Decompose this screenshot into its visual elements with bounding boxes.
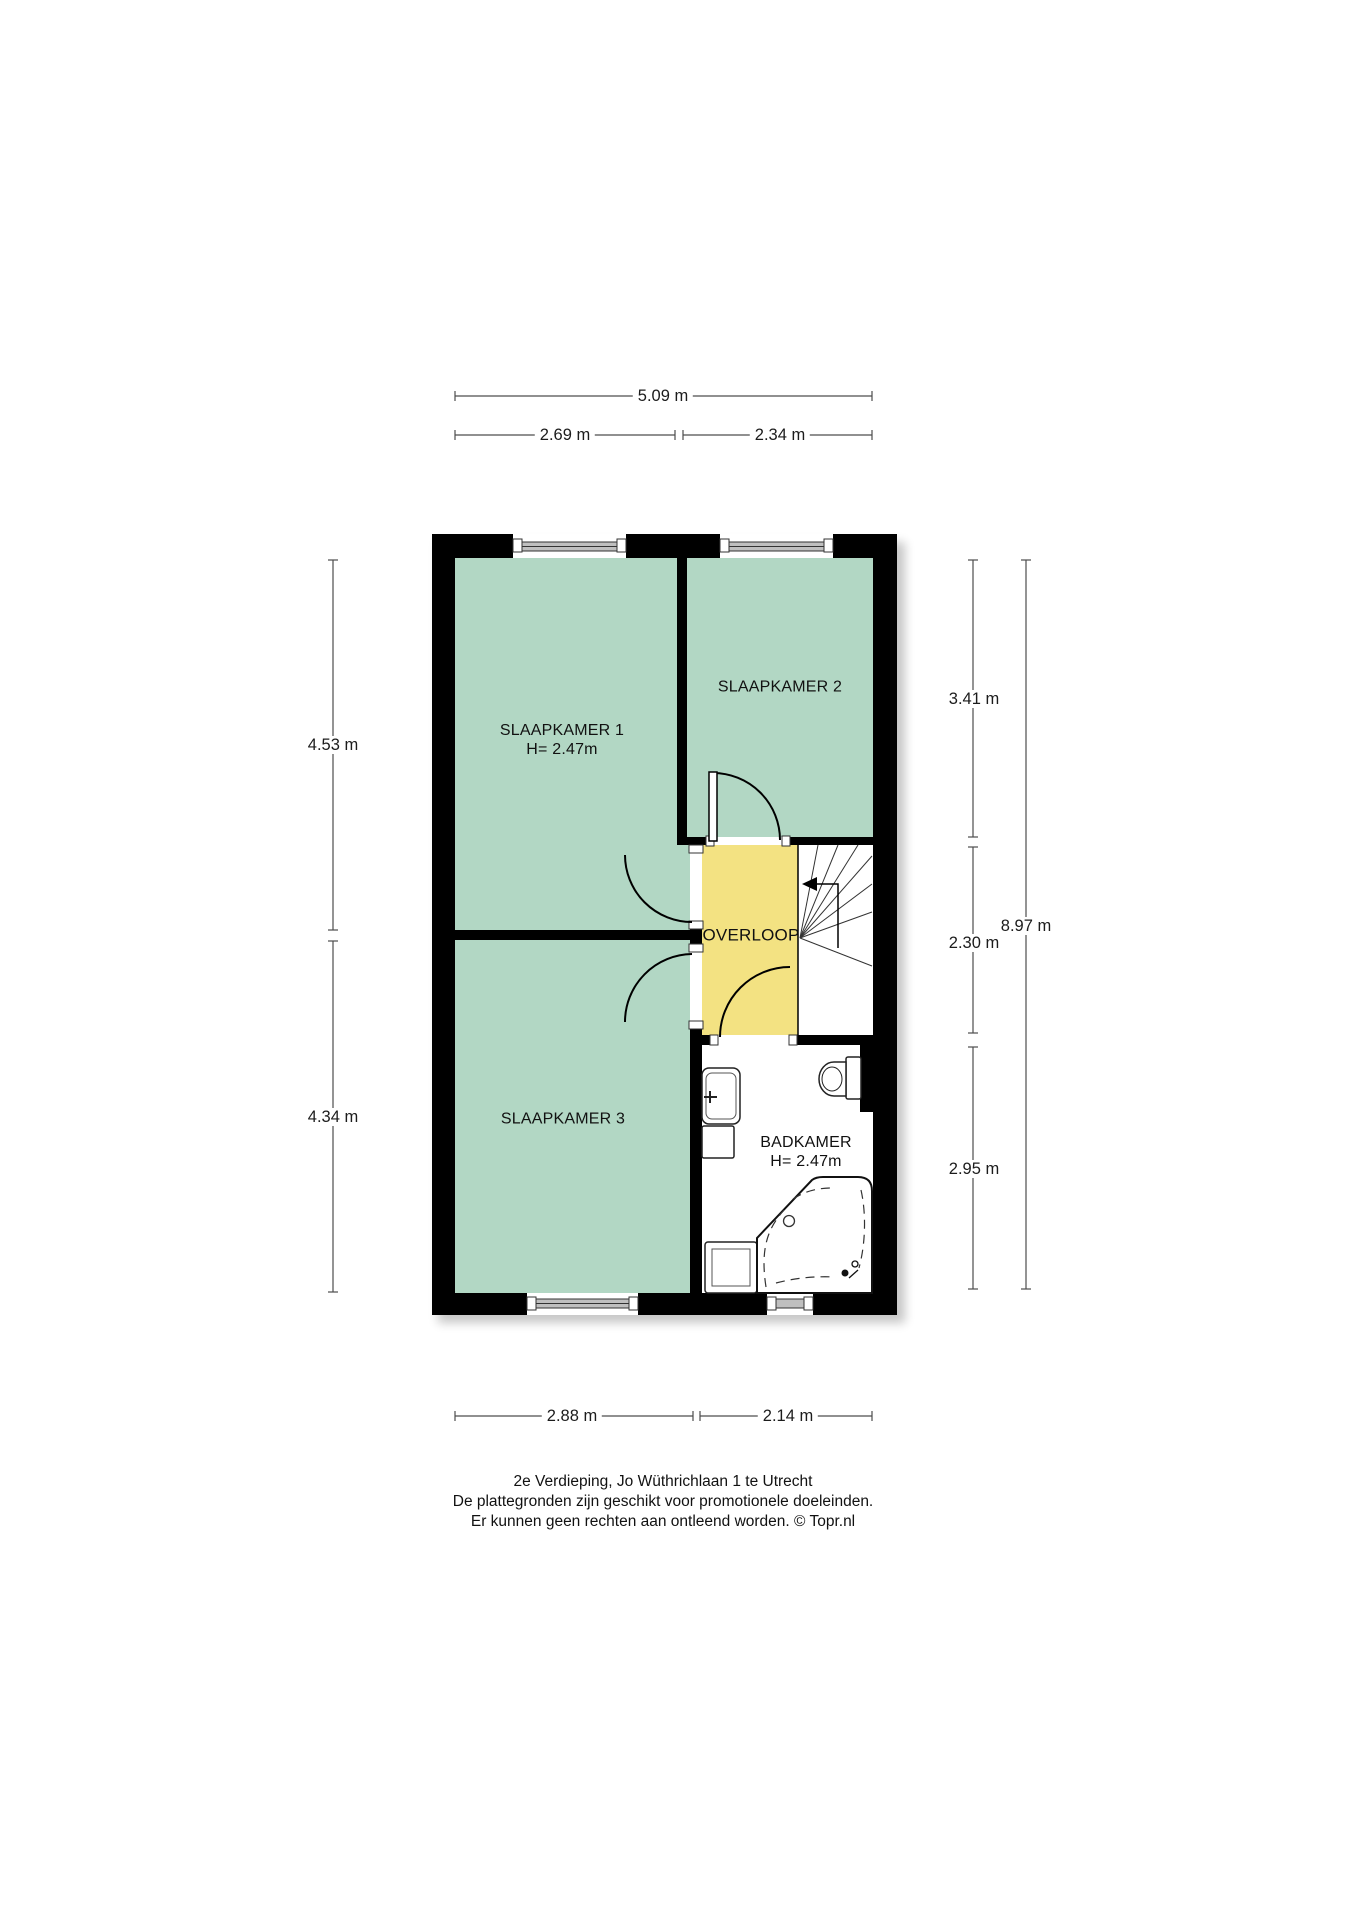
dim-bottom-left: 2.88 m [542,1407,602,1425]
dim-right-middle: 2.30 m [944,934,1004,952]
caption-line-3: Er kunnen geen rechten aan ontleend word… [453,1512,874,1532]
plan-caption: 2e Verdieping, Jo Wüthrichlaan 1 te Utre… [453,1472,874,1532]
dim-left-lower: 4.34 m [303,1108,363,1126]
room-height-note: H= 2.47m [760,1152,851,1171]
dim-right-lower: 2.95 m [944,1160,1004,1178]
room-height-note: H= 2.47m [500,740,624,759]
dim-left-upper: 4.53 m [303,736,363,754]
room-label-badkamer: BADKAMER H= 2.47m [760,1133,851,1171]
dim-top-left: 2.69 m [535,426,595,444]
room-name: BADKAMER [760,1133,851,1152]
door-leaf-slaapkamer-2 [709,772,717,841]
room-label-slaapkamer-2: SLAAPKAMER 2 [718,678,842,697]
room-label-slaapkamer-3: SLAAPKAMER 3 [501,1110,625,1129]
shower-fixture [705,1242,757,1293]
dim-top-total: 5.09 m [633,387,693,405]
dim-bottom-right: 2.14 m [758,1407,818,1425]
caption-line-1: 2e Verdieping, Jo Wüthrichlaan 1 te Utre… [453,1472,874,1492]
duct-wall [860,1043,873,1112]
floor-plan-svg [0,0,1358,1920]
dim-right-upper: 3.41 m [944,690,1004,708]
room-name: SLAAPKAMER 1 [500,721,624,740]
cabinet-fixture [702,1126,734,1158]
dim-right-total: 8.97 m [996,917,1056,935]
room-label-slaapkamer-1: SLAAPKAMER 1 H= 2.47m [500,721,624,759]
room-label-overloop: OVERLOOP [702,926,799,945]
slaapkamer-1-area-ext [677,845,690,930]
sink-fixture [702,1068,740,1124]
stairs-area [798,845,873,1035]
floorplan-page: SLAAPKAMER 1 H= 2.47m SLAAPKAMER 2 SLAAP… [0,0,1358,1920]
dim-top-right: 2.34 m [750,426,810,444]
caption-line-2: De plattegronden zijn geschikt voor prom… [453,1492,874,1512]
